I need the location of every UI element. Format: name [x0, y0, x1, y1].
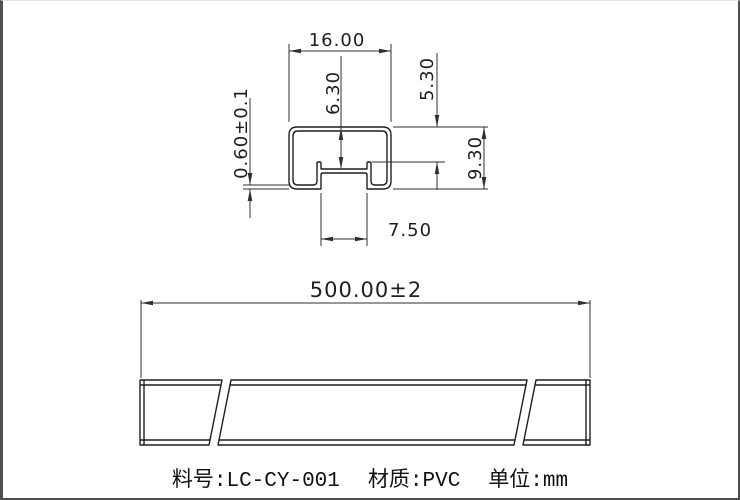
dim-height: 9.30	[393, 127, 488, 189]
arrowhead	[355, 237, 367, 242]
dim-width-label: 16.00	[309, 30, 366, 51]
arrowhead	[435, 162, 440, 174]
arrowhead	[435, 115, 440, 127]
unit-label: 单位:mm	[488, 463, 568, 493]
arrowhead	[339, 157, 344, 169]
dim-slot-width: 7.50	[321, 193, 432, 246]
arrowhead	[578, 301, 590, 306]
bar-segment-left	[140, 380, 222, 445]
dim-length-label: 500.00±2	[310, 278, 422, 302]
arrowhead	[379, 49, 391, 54]
bar-segment-middle	[218, 380, 527, 445]
dim-inner-depth: 6.30	[323, 56, 344, 169]
drawing-sheet: 16.00 6.30 5.30 9.30	[0, 0, 740, 500]
part-number-label: 料号:LC-CY-001	[172, 463, 340, 493]
dim-wall-thickness: 0.60±0.1	[231, 87, 289, 218]
side-view	[140, 380, 590, 445]
arrowhead	[248, 189, 253, 201]
dim-wall-thickness-label: 0.60±0.1	[231, 87, 252, 179]
arrowhead	[339, 128, 344, 140]
dim-length: 500.00±2	[141, 278, 590, 378]
dim-lip-depth: 5.30	[372, 53, 445, 190]
material-label: 材质:PVC	[368, 463, 460, 493]
dim-height-label: 9.30	[465, 136, 486, 180]
dim-slot-width-label: 7.50	[388, 220, 432, 241]
title-block: 料号:LC-CY-001 材质:PVC 单位:mm	[0, 463, 740, 493]
dim-inner-depth-label: 6.30	[323, 71, 344, 115]
arrowhead	[289, 49, 301, 54]
arrowhead	[141, 301, 153, 306]
technical-drawing-canvas: 16.00 6.30 5.30 9.30	[0, 0, 740, 500]
dim-lip-depth-label: 5.30	[417, 57, 438, 101]
arrowhead	[321, 237, 333, 242]
bar-segment-right	[523, 380, 590, 445]
